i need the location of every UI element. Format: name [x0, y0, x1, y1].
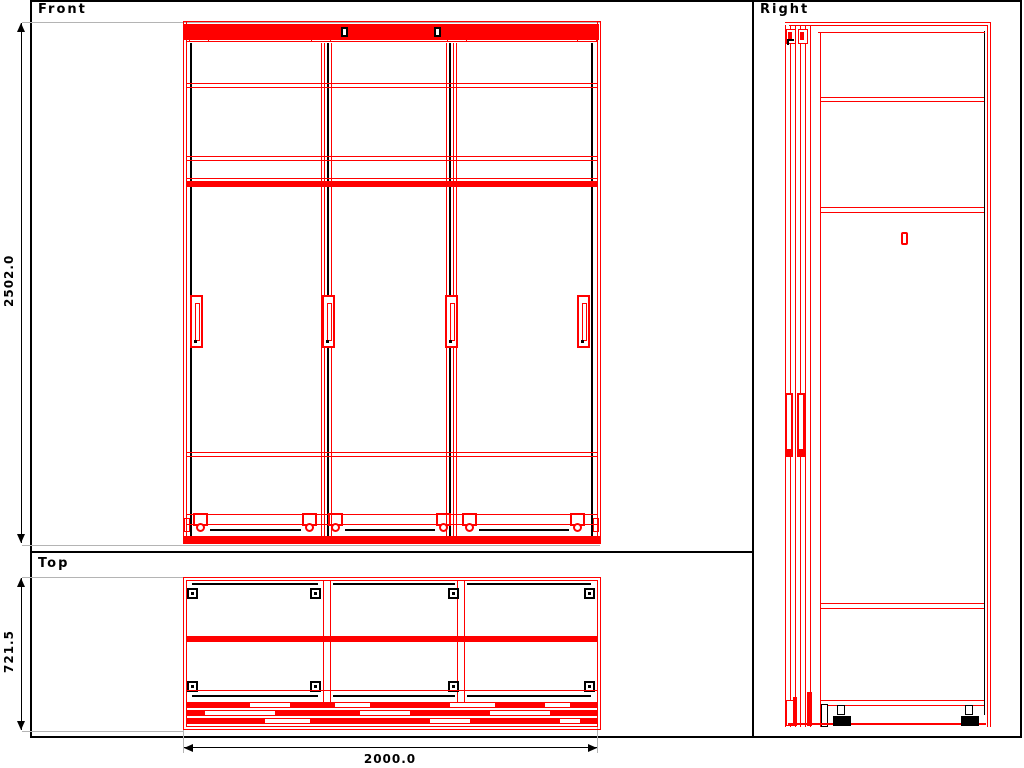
bottom-track-line [186, 514, 597, 515]
door-handle [445, 295, 458, 348]
shelf-line [186, 178, 597, 179]
fitting-pin [588, 592, 591, 595]
top-panel-line [818, 32, 985, 33]
door-stile-line [190, 43, 192, 537]
back-edge-line [186, 580, 597, 581]
door-handle-profile [785, 393, 793, 457]
arrow-up-icon [17, 578, 25, 587]
corner-fitting [448, 588, 459, 599]
track-bracket [787, 39, 789, 45]
track-gap [560, 719, 580, 723]
front-panel-line [467, 695, 591, 697]
arrow-down-icon [17, 721, 25, 730]
border-bottom [30, 736, 1022, 738]
door-divider-line [324, 43, 325, 537]
extension-line [22, 545, 600, 546]
extension-line [22, 22, 600, 23]
side-panel-line [186, 21, 187, 544]
top-track-bar [184, 24, 599, 40]
track-gap [490, 711, 550, 715]
door-track-band [186, 702, 597, 708]
bottom-track-fill [793, 697, 797, 726]
front-edge-line [186, 726, 597, 727]
carcass-front-line [820, 32, 821, 727]
door-divider-line [456, 43, 457, 537]
border-left [30, 0, 32, 737]
fitting-pin [588, 685, 591, 688]
track-gap [430, 719, 470, 723]
front-edge-line [186, 690, 597, 691]
corner-fitting [310, 588, 321, 599]
fitting-pin [314, 685, 317, 688]
door-profile-line [805, 25, 806, 727]
bottom-rail-line [345, 529, 435, 531]
door-stile-line [449, 43, 451, 537]
corner-fitting [584, 588, 595, 599]
border-top [30, 0, 1022, 2]
back-panel-line [984, 31, 985, 715]
handle-inset [582, 303, 587, 341]
roller-wheel [439, 523, 448, 532]
handle-screw [326, 340, 329, 343]
door-track-band [186, 718, 597, 724]
top-view-label: Top [38, 556, 69, 571]
roller-wheel [573, 523, 582, 532]
handle-grip-fill [799, 449, 804, 457]
track-gap [360, 711, 410, 715]
door-divider-line [453, 43, 454, 537]
dimension-line [21, 578, 22, 730]
top-edge-line [785, 22, 991, 23]
handle-screw [449, 340, 452, 343]
door-handle [190, 295, 203, 348]
divider-front-top [30, 551, 754, 553]
bottom-track-line [186, 524, 597, 525]
track-clip [434, 27, 441, 37]
back-panel-line [467, 583, 591, 585]
shelf-line [820, 608, 984, 609]
track-gap [450, 703, 495, 707]
bottom-rail-line [210, 529, 301, 531]
side-edge-line [183, 577, 184, 730]
shelf-line [186, 456, 597, 457]
door-hanger-bracket [189, 33, 209, 42]
width-value: 2000.0 [360, 752, 420, 766]
roller-wheel [331, 523, 340, 532]
side-panel-line [183, 21, 184, 544]
front-panel-line [192, 695, 318, 697]
foot-base [833, 716, 851, 726]
handle-inset [327, 303, 332, 341]
track-gap [205, 711, 275, 715]
bottom-rail-line [479, 529, 569, 531]
track-gap [545, 703, 570, 707]
front-view-label: Front [38, 2, 87, 17]
front-edge-line [183, 729, 600, 730]
mid-rail-band [186, 636, 597, 642]
dimension-line [184, 747, 597, 748]
track-clip [341, 27, 348, 37]
door-hanger-bracket [447, 33, 467, 42]
handle-screw [581, 340, 584, 343]
door-profile-line [800, 25, 801, 727]
door-stile-line [591, 43, 593, 537]
track-gap [335, 703, 370, 707]
door-profile-line [785, 25, 786, 727]
back-panel-line [333, 583, 455, 585]
depth-value: 721.5 [2, 633, 16, 673]
track-profile-fill [800, 32, 804, 40]
arrow-left-icon [184, 744, 193, 752]
bottom-plinth-bar [183, 536, 600, 544]
back-panel-line [192, 583, 318, 585]
floor-line [788, 723, 986, 725]
side-panel-line [990, 22, 991, 727]
rail-fitting [901, 232, 908, 245]
track-gap [250, 703, 290, 707]
door-profile-line [790, 25, 791, 727]
foot-stem [965, 705, 973, 715]
door-divider-line [331, 43, 332, 537]
shelf-line [820, 207, 984, 208]
fitting-pin [314, 592, 317, 595]
fitting-pin [452, 592, 455, 595]
shelf-line [820, 97, 984, 98]
top-rail-line [186, 41, 597, 42]
door-stile-line [327, 43, 329, 537]
divider-vertical [752, 0, 754, 737]
corner-fitting [187, 588, 198, 599]
door-profile-line [795, 25, 796, 727]
door-hanger-bracket [311, 33, 331, 42]
extension-line [597, 727, 598, 753]
right-view-label: Right [760, 2, 809, 17]
fitting-pin [191, 592, 194, 595]
track-end-cap [593, 518, 599, 532]
shelf-line [820, 101, 984, 102]
door-divider-line [321, 43, 322, 537]
door-handle [322, 295, 335, 348]
handle-inset [195, 303, 200, 341]
side-panel-line [600, 21, 601, 544]
shelf-line [820, 603, 984, 604]
shelf-line [186, 156, 597, 157]
foot-base [961, 716, 979, 726]
arrow-up-icon [17, 23, 25, 32]
border-right [1020, 0, 1022, 737]
shelf-line [186, 160, 597, 161]
roller-wheel [305, 523, 314, 532]
handle-grip-fill [787, 449, 792, 457]
track-end-cap [184, 518, 190, 532]
drawing-canvas: Front Top Right 2502.0 721.5 2000.0 [0, 0, 1024, 768]
side-edge-line [597, 580, 598, 727]
shelf-band [186, 181, 597, 187]
door-hanger-bracket [577, 33, 597, 42]
side-panel-line [987, 25, 988, 727]
roller-wheel [465, 523, 474, 532]
handle-screw [194, 340, 197, 343]
foot-stem [837, 705, 845, 715]
arrow-down-icon [17, 534, 25, 543]
front-panel-line [333, 695, 455, 697]
arrow-right-icon [588, 744, 597, 752]
door-handle-profile [797, 393, 805, 457]
bottom-panel-line [820, 700, 984, 701]
shelf-line [186, 83, 597, 84]
handle-inset [450, 303, 455, 341]
dimension-line [21, 23, 22, 543]
height-value: 2502.0 [2, 261, 16, 307]
fitting-pin [191, 685, 194, 688]
shelf-line [186, 452, 597, 453]
bottom-track-fill [807, 692, 812, 726]
top-edge-line [789, 25, 988, 26]
shelf-line [186, 87, 597, 88]
side-edge-line [600, 577, 601, 730]
back-edge-line [183, 577, 600, 578]
door-divider-line [446, 43, 447, 537]
extension-line [22, 731, 183, 732]
track-gap [265, 719, 310, 723]
roller-wheel [196, 523, 205, 532]
door-profile-line [810, 25, 811, 727]
side-panel-line [597, 21, 598, 544]
fitting-pin [452, 685, 455, 688]
door-handle [577, 295, 590, 348]
shelf-line [820, 212, 984, 213]
top-edge-line [183, 21, 600, 22]
